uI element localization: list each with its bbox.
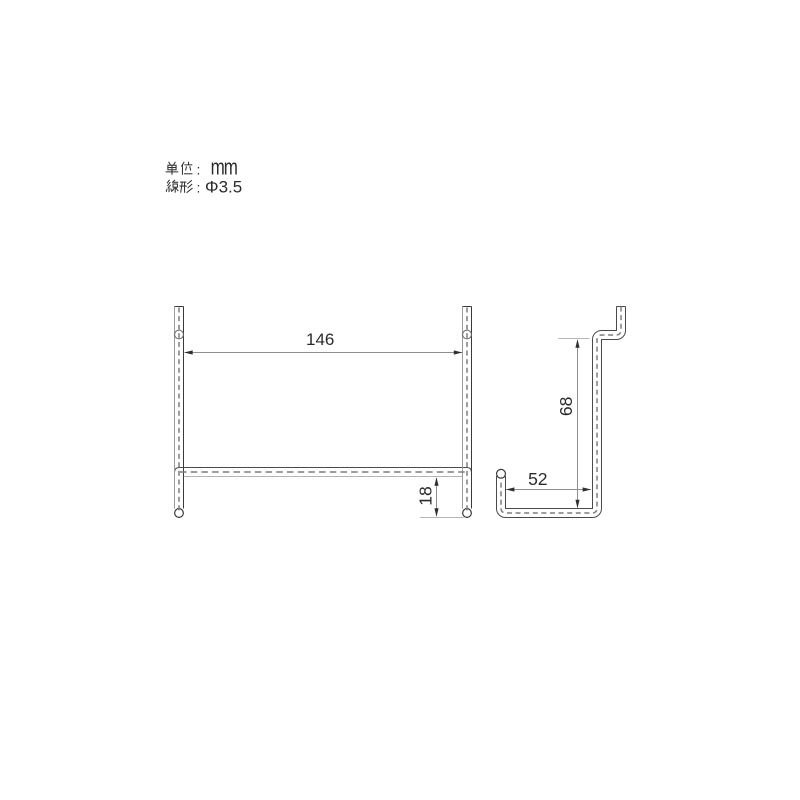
svg-text::: : [197, 180, 201, 196]
svg-text:68: 68 [556, 397, 576, 416]
svg-text::: : [197, 162, 201, 178]
svg-text:mm: mm [211, 155, 238, 180]
svg-text:Φ3.5: Φ3.5 [205, 178, 242, 197]
svg-text:52: 52 [528, 469, 547, 489]
svg-text:146: 146 [306, 330, 334, 349]
svg-text:18: 18 [415, 486, 435, 505]
